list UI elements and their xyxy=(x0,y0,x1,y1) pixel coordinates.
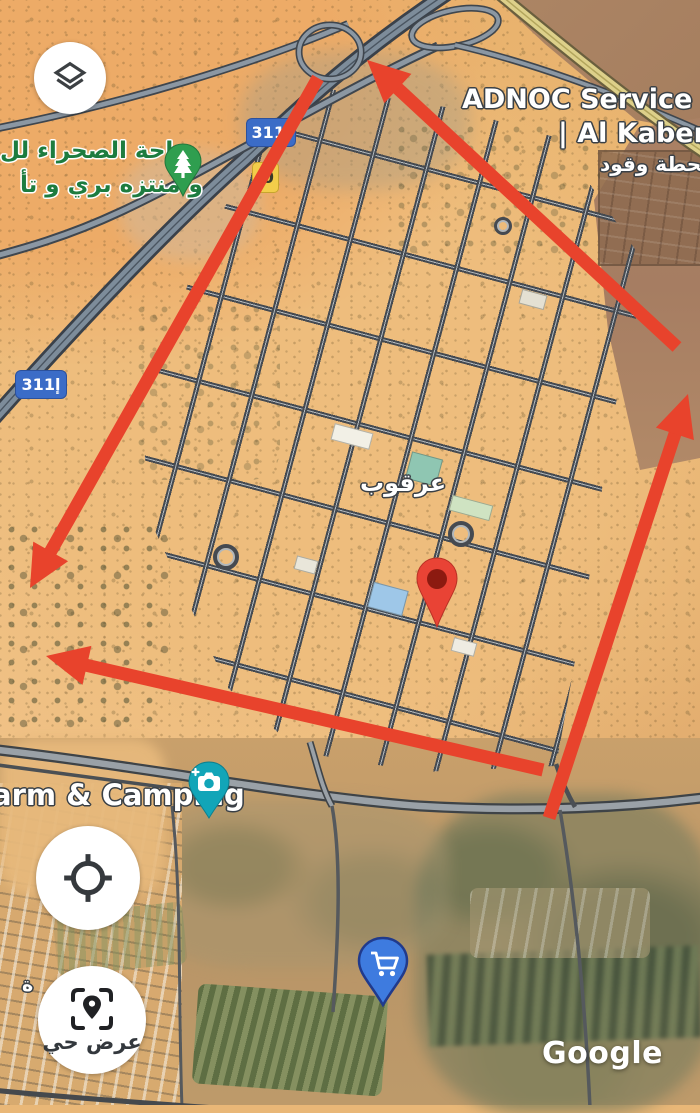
my-location-button[interactable] xyxy=(36,826,140,930)
maps-app-screen: { "labels": { "oasis_line1": "واحة الصحر… xyxy=(0,0,700,1105)
my-location-icon xyxy=(62,852,114,904)
layers-icon xyxy=(52,60,88,96)
live-view-icon xyxy=(69,986,115,1032)
live-view-button[interactable]: عرض حي xyxy=(38,966,146,1074)
red-annotation-arrows xyxy=(0,0,700,1105)
live-view-label: عرض حي xyxy=(42,1030,141,1054)
layers-button[interactable] xyxy=(34,42,106,114)
